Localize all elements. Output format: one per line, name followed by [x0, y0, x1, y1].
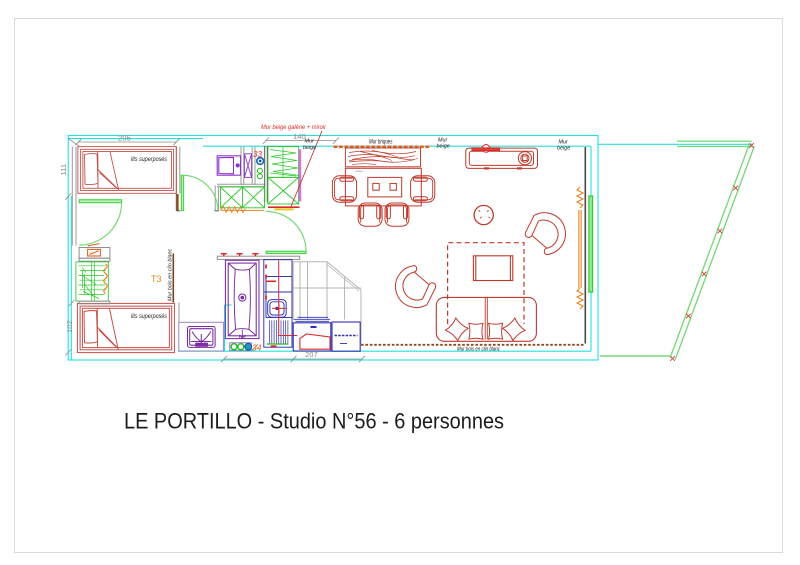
svg-text:lits superposés: lits superposés: [131, 156, 168, 163]
svg-text:34: 34: [252, 343, 262, 353]
svg-text:Mur briques: Mur briques: [369, 139, 393, 145]
svg-text:Mur: Mur: [305, 139, 314, 145]
svg-text:205: 205: [118, 133, 131, 142]
svg-text:lits superposés: lits superposés: [131, 313, 168, 320]
svg-text:beige: beige: [437, 143, 450, 149]
svg-text:beige: beige: [303, 145, 316, 151]
svg-text:T3: T3: [151, 274, 162, 284]
svg-text:Mur bois en clin blanc: Mur bois en clin blanc: [457, 346, 500, 352]
svg-text:beige: beige: [557, 145, 570, 151]
svg-text:Mur beige galène + miroir: Mur beige galène + miroir: [261, 124, 327, 131]
svg-text:102: 102: [65, 320, 74, 333]
svg-text:Mur bois en clin blanc: Mur bois en clin blanc: [168, 249, 174, 301]
svg-text:111: 111: [59, 164, 68, 176]
svg-text:LE PORTILLO - Studio N°56 - 6: LE PORTILLO - Studio N°56 - 6 personnes: [124, 409, 504, 434]
